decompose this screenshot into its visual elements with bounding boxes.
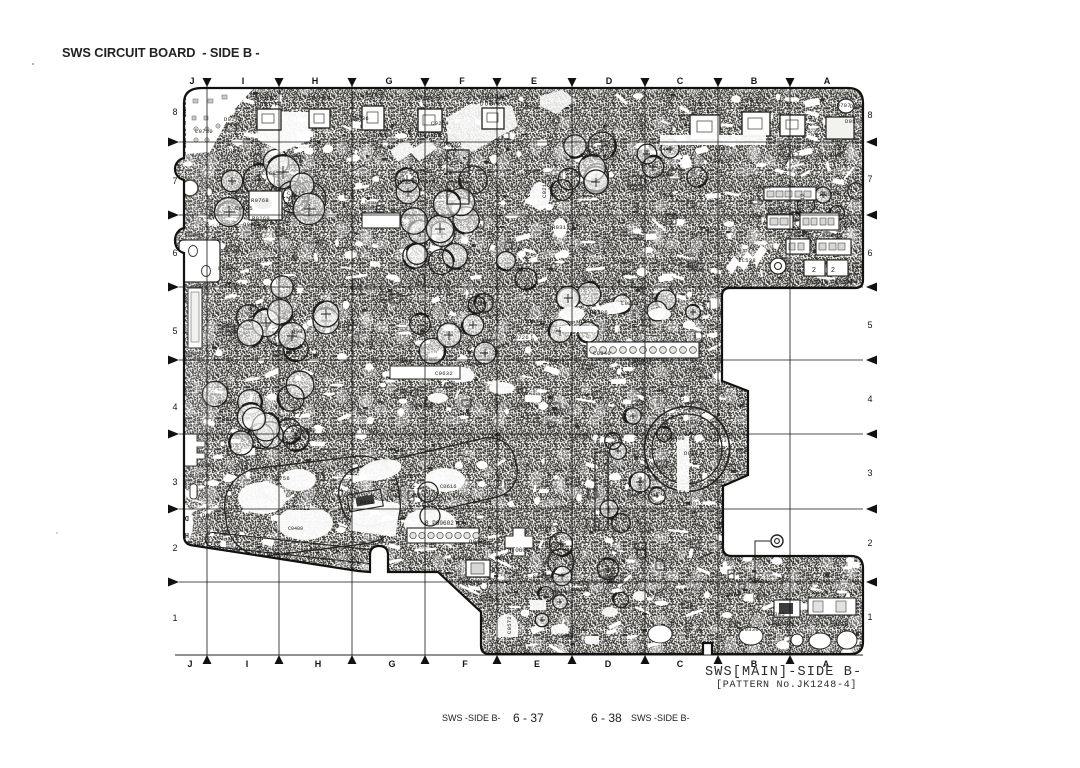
svg-text:IC561: IC561 (498, 524, 505, 542)
svg-text:REV/REW: REV/REW (416, 132, 442, 139)
svg-text:R0549: R0549 (218, 399, 236, 406)
svg-text:F: F (459, 76, 465, 86)
svg-text:Q0699: Q0699 (513, 170, 531, 177)
svg-text:R0580: R0580 (546, 410, 564, 417)
svg-text:C0215: C0215 (541, 180, 548, 198)
svg-text:SWS[MAIN]-SIDE B-: SWS[MAIN]-SIDE B- (705, 665, 862, 680)
svg-text:C0323: C0323 (763, 99, 781, 106)
svg-text:L0617: L0617 (710, 225, 728, 232)
svg-text:IC451: IC451 (492, 338, 499, 356)
svg-text:[PATTERN No.JK1248-4]: [PATTERN No.JK1248-4] (716, 679, 857, 691)
svg-text:8 PG0602 1: 8 PG0602 1 (425, 520, 461, 527)
svg-text:IC321: IC321 (399, 388, 417, 395)
svg-text:IC243: IC243 (356, 251, 363, 269)
svg-text:IC668: IC668 (258, 170, 276, 177)
svg-text:Q0427: Q0427 (600, 236, 607, 254)
svg-text:I: I (246, 659, 249, 669)
svg-text:DUB: DUB (480, 101, 494, 108)
svg-text:L0496: L0496 (454, 411, 472, 418)
svg-text:L0330: L0330 (741, 626, 759, 633)
svg-text:C0887: C0887 (638, 113, 645, 131)
svg-text:R0519: R0519 (495, 555, 513, 562)
svg-text:IC798: IC798 (534, 524, 552, 531)
svg-text:IC465: IC465 (695, 374, 713, 381)
svg-text:R0909: R0909 (307, 239, 325, 246)
svg-text:PG0908: PG0908 (820, 191, 842, 198)
svg-text:C0215: C0215 (287, 190, 305, 197)
svg-text:D0848: D0848 (468, 361, 486, 368)
svg-text:G: G (388, 659, 395, 669)
svg-text:J: J (187, 659, 192, 669)
svg-text:E: E (531, 76, 537, 86)
svg-text:1: 1 (867, 612, 872, 622)
svg-text:IC754: IC754 (397, 179, 415, 186)
svg-text:IC528: IC528 (738, 257, 756, 264)
svg-text:L0832: L0832 (356, 499, 374, 506)
svg-text:C0254: C0254 (431, 120, 449, 127)
svg-text:S0908: S0908 (824, 145, 847, 152)
svg-text:7: 7 (867, 174, 872, 184)
svg-text:L0275: L0275 (324, 163, 342, 170)
svg-text:R0868: R0868 (616, 258, 634, 265)
svg-text:C0519: C0519 (618, 270, 636, 277)
svg-text:C0730: C0730 (247, 304, 254, 322)
svg-text:Q0636: Q0636 (351, 115, 369, 122)
svg-text:C0947: C0947 (750, 213, 768, 220)
svg-text:PG0405: PG0405 (395, 358, 415, 365)
svg-text:6: 6 (172, 248, 177, 258)
svg-text:IC258: IC258 (506, 266, 524, 273)
svg-text:DISPLAY: DISPLAY (820, 152, 846, 159)
svg-text:S0903: S0903 (360, 92, 385, 99)
svg-text:D0277: D0277 (202, 512, 220, 519)
svg-text:L0707: L0707 (833, 102, 851, 109)
svg-text:H: H (312, 76, 319, 86)
svg-text:4: 4 (867, 394, 872, 404)
svg-text:C0616: C0616 (440, 483, 457, 490)
svg-text:C0409: C0409 (288, 526, 303, 532)
svg-text:C0954: C0954 (668, 489, 686, 496)
svg-text:L0292: L0292 (376, 144, 394, 151)
svg-text:E: E (534, 659, 540, 669)
svg-text:5: 5 (172, 326, 177, 336)
svg-text:C0756: C0756 (272, 475, 290, 482)
svg-text:R0743: R0743 (511, 461, 529, 468)
svg-text:C0385: C0385 (679, 383, 686, 401)
svg-text:L0530: L0530 (685, 366, 703, 373)
svg-text:R0726: R0726 (511, 334, 529, 341)
svg-text:RT0601: RT0601 (508, 547, 530, 554)
svg-text:C0964: C0964 (723, 591, 741, 598)
svg-text:F: F (462, 659, 468, 669)
svg-text:C0286: C0286 (753, 593, 771, 600)
svg-text:R0617: R0617 (282, 349, 300, 356)
svg-text:L0677: L0677 (267, 377, 285, 384)
svg-text:C0469: C0469 (493, 393, 500, 411)
svg-text:L0834: L0834 (474, 498, 492, 505)
svg-text:PG0403: PG0403 (772, 621, 794, 628)
svg-text:R0548: R0548 (597, 441, 615, 448)
svg-text:7: 7 (172, 176, 177, 186)
svg-text:S0909: S0909 (778, 145, 801, 152)
svg-text:R0874: R0874 (208, 198, 215, 216)
svg-text:TITLE: TITLE (688, 108, 711, 115)
svg-text:S0905: S0905 (416, 95, 441, 102)
svg-text:SWS CIRCUIT BOARD - SIDE B -: SWS CIRCUIT BOARD - SIDE B - (62, 45, 260, 60)
svg-text:Q0585: Q0585 (197, 462, 215, 469)
svg-text:D0412: D0412 (635, 357, 653, 364)
svg-text:L0224: L0224 (325, 487, 343, 494)
svg-text:Q0660: Q0660 (637, 476, 644, 494)
svg-text:PG0912: PG0912 (360, 205, 382, 212)
svg-text:IC472: IC472 (382, 294, 389, 312)
svg-text:D0595: D0595 (845, 118, 863, 125)
svg-text:DATE: DATE (740, 105, 758, 112)
svg-text:D0302: D0302 (581, 264, 588, 282)
svg-text:SWS -SIDE B-: SWS -SIDE B- (631, 713, 690, 723)
svg-text:D: D (605, 659, 612, 669)
svg-text:D0327: D0327 (684, 450, 702, 457)
svg-text:Q0879: Q0879 (292, 328, 310, 335)
svg-text:6 - 38: 6 - 38 (591, 711, 622, 725)
svg-text:C0547: C0547 (692, 231, 710, 238)
svg-text:L0604: L0604 (218, 265, 236, 272)
svg-text:D0340: D0340 (528, 318, 546, 325)
svg-text:C0632: C0632 (435, 370, 453, 377)
svg-text:D0498: D0498 (667, 435, 685, 442)
svg-text:H: H (315, 659, 322, 669)
svg-text:PG0401: PG0401 (768, 207, 790, 214)
svg-text:0X0901: 0X0901 (545, 357, 566, 364)
svg-text:R0992: R0992 (812, 590, 827, 596)
svg-text:B: B (751, 76, 758, 86)
svg-text:R0719: R0719 (553, 562, 571, 569)
svg-text:C0560: C0560 (596, 578, 614, 585)
svg-text:C0840: C0840 (593, 350, 611, 357)
svg-text:PG0406: PG0406 (791, 232, 811, 239)
svg-text:C0431: C0431 (521, 103, 539, 110)
svg-text:1: 1 (492, 567, 496, 574)
svg-text:Q0923: Q0923 (415, 402, 433, 409)
svg-text:C0677: C0677 (565, 586, 583, 593)
svg-text:D0810: D0810 (386, 446, 404, 453)
svg-text:C: C (677, 76, 684, 86)
svg-text:C0375: C0375 (574, 194, 592, 201)
svg-text:Q0439: Q0439 (474, 540, 492, 547)
svg-text:R0317: R0317 (552, 224, 570, 231)
svg-text:R0715: R0715 (686, 252, 704, 259)
svg-text:R0712: R0712 (799, 193, 806, 211)
svg-text:3: 3 (172, 477, 177, 487)
svg-text:IC444: IC444 (690, 157, 697, 175)
svg-text:C0457: C0457 (344, 320, 362, 327)
svg-text:L0865: L0865 (513, 402, 531, 409)
svg-text:Q0361: Q0361 (570, 626, 588, 633)
svg-text:L0283: L0283 (621, 300, 639, 307)
svg-text:IC929: IC929 (445, 279, 452, 297)
svg-text:PG0903: PG0903 (840, 222, 862, 229)
svg-text:L0929: L0929 (656, 192, 674, 199)
svg-text:2: 2 (867, 538, 872, 548)
svg-text:C: C (677, 659, 684, 669)
svg-text:C0292: C0292 (572, 222, 590, 229)
svg-text:C0771: C0771 (541, 561, 548, 579)
svg-text:L0697: L0697 (665, 89, 672, 107)
svg-text:D0271: D0271 (224, 116, 242, 123)
svg-text:8: 8 (867, 110, 872, 120)
svg-text:D: D (606, 76, 613, 86)
svg-text:R0768: R0768 (251, 197, 269, 204)
svg-text:S0912: S0912 (292, 505, 310, 512)
svg-text:3: 3 (867, 468, 872, 478)
svg-text:R0551: R0551 (685, 627, 703, 634)
svg-text:Q0639: Q0639 (229, 147, 247, 154)
svg-text:L0941: L0941 (710, 158, 728, 165)
svg-text:J: J (189, 76, 194, 86)
svg-text:R0701: R0701 (782, 157, 789, 175)
svg-text:L0730: L0730 (195, 128, 213, 135)
svg-text:PG0905: PG0905 (822, 232, 842, 239)
svg-text:2: 2 (831, 267, 835, 274)
svg-text:Q0481: Q0481 (594, 235, 601, 253)
svg-text:R0962: R0962 (480, 596, 498, 603)
svg-text:CP0202: CP0202 (440, 142, 462, 149)
svg-text:5: 5 (867, 320, 872, 330)
svg-text:L10901: L10901 (678, 501, 700, 508)
svg-text:L0442: L0442 (655, 146, 673, 153)
svg-text:C0344: C0344 (490, 579, 508, 586)
svg-text:6: 6 (867, 248, 872, 258)
svg-text:S0913: S0913 (830, 621, 848, 628)
svg-text:C0595: C0595 (235, 205, 253, 212)
svg-text:PLAY: PLAY (366, 132, 390, 139)
svg-text:4: 4 (172, 402, 177, 412)
svg-text:A: A (824, 76, 831, 86)
svg-text:L0390: L0390 (298, 427, 316, 434)
svg-text:D0407: D0407 (421, 178, 439, 185)
svg-text:C0572: C0572 (506, 616, 513, 634)
svg-text:1: 1 (172, 613, 177, 623)
svg-text:R0269: R0269 (252, 215, 270, 222)
svg-text:L0395: L0395 (622, 626, 629, 644)
svg-text:IC241: IC241 (412, 168, 430, 175)
svg-text:2: 2 (458, 567, 462, 574)
svg-text:L0669: L0669 (485, 479, 503, 486)
svg-text:PG0911 PG0908: PG0911 PG0908 (806, 279, 853, 286)
svg-text:I: I (242, 76, 245, 86)
svg-text:C0930: C0930 (348, 409, 366, 416)
svg-text:Q0654: Q0654 (788, 154, 806, 161)
svg-text:6 - 37: 6 - 37 (513, 711, 544, 725)
svg-text:2: 2 (172, 543, 177, 553)
svg-text:EJECT: EJECT (255, 102, 278, 109)
svg-text:8: 8 (172, 107, 177, 117)
svg-text:Q0501: Q0501 (439, 160, 457, 167)
svg-text:R0386: R0386 (590, 309, 608, 316)
svg-text:IC799: IC799 (655, 171, 673, 178)
svg-text:G: G (385, 76, 392, 86)
svg-text:SWS -SIDE B-: SWS -SIDE B- (442, 713, 501, 723)
svg-text:F.F: F.F (307, 102, 321, 109)
svg-text:R0298: R0298 (631, 309, 638, 327)
svg-text:L0461: L0461 (680, 586, 698, 593)
svg-text:Q0828: Q0828 (243, 221, 261, 228)
svg-text:L0757: L0757 (454, 555, 472, 562)
svg-text:C0677: C0677 (634, 195, 641, 213)
svg-text:CN0201: CN0201 (748, 578, 769, 585)
svg-text:R0381: R0381 (368, 331, 375, 349)
svg-text:Q0254: Q0254 (399, 473, 417, 480)
svg-text:Q0366: Q0366 (686, 419, 704, 426)
svg-text:D0307: D0307 (754, 184, 772, 191)
svg-text:Q0524: Q0524 (633, 422, 640, 440)
svg-text:2: 2 (812, 267, 816, 274)
svg-text:L0631: L0631 (655, 389, 662, 407)
svg-text:Q0549: Q0549 (231, 189, 249, 196)
svg-text:R0744: R0744 (620, 544, 627, 562)
svg-text:C0916: C0916 (218, 416, 236, 423)
svg-text:C0536: C0536 (545, 542, 563, 549)
svg-text:C0385: C0385 (767, 611, 785, 618)
svg-text:PG0810: PG0810 (458, 580, 480, 587)
